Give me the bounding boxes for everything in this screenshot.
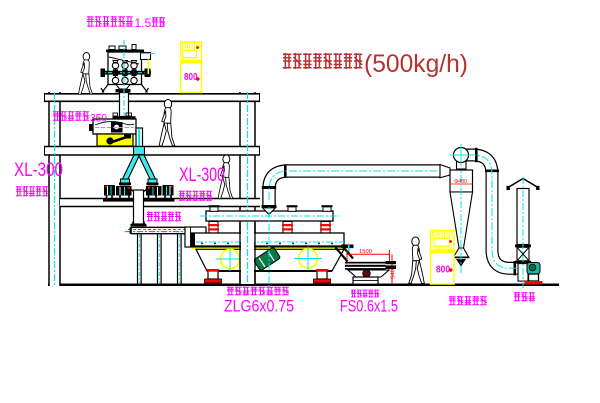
svg-text:FS0.6x1.5: FS0.6x1.5 (340, 298, 398, 316)
svg-text:350: 350 (90, 113, 107, 125)
svg-text:800: 800 (436, 264, 450, 276)
svg-text:ZLG6x0.75: ZLG6x0.75 (224, 298, 294, 316)
svg-text:XL-300: XL-300 (179, 165, 225, 186)
svg-text:XL-300: XL-300 (14, 160, 63, 181)
svg-text:800: 800 (184, 71, 198, 83)
svg-text:540: 540 (391, 269, 397, 279)
svg-text:1.5: 1.5 (135, 16, 152, 30)
svg-text:(500kg/h): (500kg/h) (364, 50, 468, 78)
svg-text:1500: 1500 (359, 249, 372, 255)
